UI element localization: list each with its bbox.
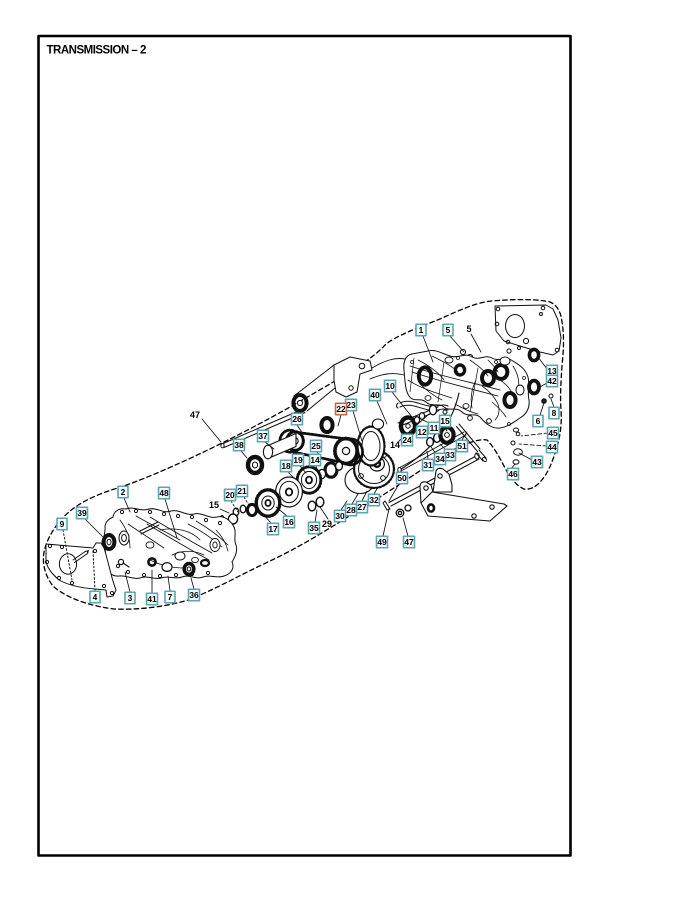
svg-text:28: 28 <box>346 505 356 515</box>
svg-text:33: 33 <box>445 450 455 460</box>
svg-text:34: 34 <box>435 454 445 464</box>
svg-text:41: 41 <box>147 594 157 604</box>
svg-text:4: 4 <box>93 592 98 602</box>
svg-text:5: 5 <box>466 324 471 334</box>
svg-text:20: 20 <box>225 490 235 500</box>
svg-text:11: 11 <box>430 423 439 433</box>
svg-text:45: 45 <box>548 428 558 438</box>
svg-text:9: 9 <box>60 519 65 529</box>
svg-text:14: 14 <box>390 440 400 450</box>
svg-text:40: 40 <box>370 390 380 400</box>
svg-text:10: 10 <box>385 381 395 391</box>
svg-text:2: 2 <box>121 487 126 497</box>
svg-text:1: 1 <box>419 325 424 335</box>
svg-text:31: 31 <box>423 460 433 470</box>
svg-text:32: 32 <box>369 495 379 505</box>
svg-text:39: 39 <box>77 508 87 518</box>
svg-text:12: 12 <box>417 427 427 437</box>
svg-text:23: 23 <box>346 400 356 410</box>
svg-text:17: 17 <box>268 524 278 534</box>
svg-text:15: 15 <box>440 416 450 426</box>
svg-text:27: 27 <box>357 502 367 512</box>
svg-text:43: 43 <box>532 457 542 467</box>
svg-text:TRANSMISSION – 2: TRANSMISSION – 2 <box>47 45 146 57</box>
svg-text:14: 14 <box>310 455 320 465</box>
svg-text:47: 47 <box>404 537 414 547</box>
svg-text:29: 29 <box>322 519 332 529</box>
svg-text:50: 50 <box>397 473 407 483</box>
svg-text:47: 47 <box>190 410 200 420</box>
svg-text:18: 18 <box>281 461 291 471</box>
svg-text:22: 22 <box>336 404 346 414</box>
svg-text:30: 30 <box>335 511 345 521</box>
svg-text:51: 51 <box>457 441 467 451</box>
svg-text:46: 46 <box>508 469 518 479</box>
svg-text:48: 48 <box>159 488 169 498</box>
svg-text:24: 24 <box>402 435 412 445</box>
svg-text:44: 44 <box>547 442 557 452</box>
svg-text:49: 49 <box>377 537 387 547</box>
svg-text:3: 3 <box>128 593 133 603</box>
svg-text:26: 26 <box>292 414 302 424</box>
svg-text:8: 8 <box>552 408 557 418</box>
svg-text:37: 37 <box>258 431 268 441</box>
svg-text:42: 42 <box>547 376 557 386</box>
svg-text:6: 6 <box>536 416 541 426</box>
svg-text:25: 25 <box>311 441 321 451</box>
svg-text:5: 5 <box>446 325 451 335</box>
svg-text:36: 36 <box>189 590 199 600</box>
svg-text:38: 38 <box>234 440 244 450</box>
svg-text:16: 16 <box>284 517 294 527</box>
svg-text:21: 21 <box>237 486 247 496</box>
svg-text:15: 15 <box>209 500 219 510</box>
svg-text:19: 19 <box>293 455 303 465</box>
svg-text:35: 35 <box>309 523 319 533</box>
svg-text:7: 7 <box>168 592 173 602</box>
